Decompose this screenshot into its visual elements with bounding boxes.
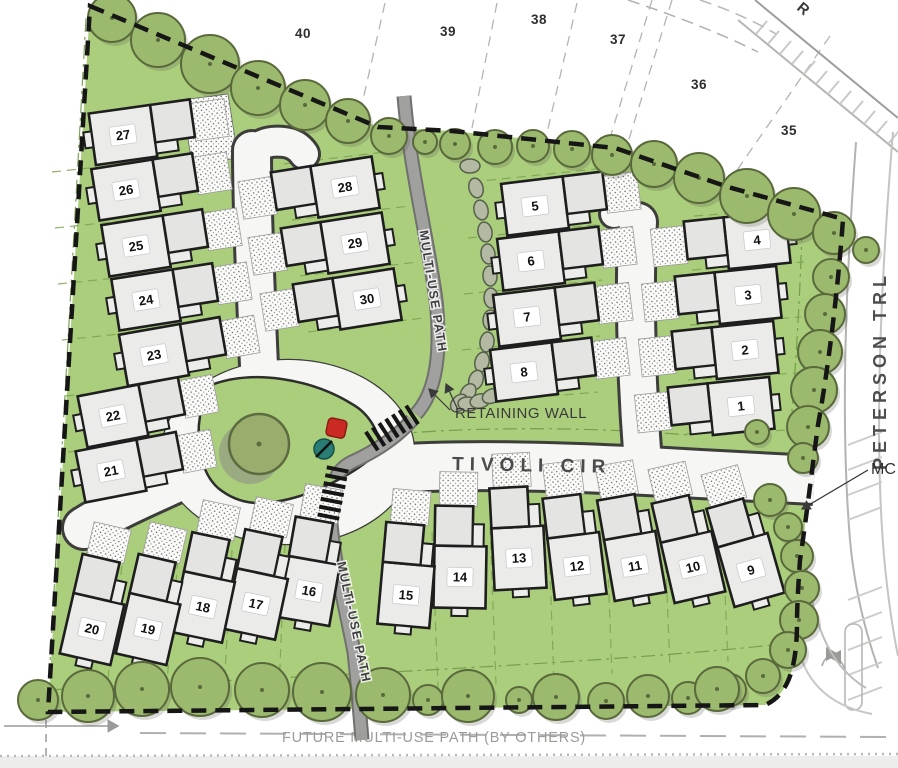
lot-label: 15: [398, 587, 414, 603]
stoop: [473, 524, 484, 546]
driveway: [592, 337, 630, 379]
garage: [281, 222, 326, 266]
lot-label: 2: [741, 342, 750, 358]
lot-marker: 15: [392, 584, 420, 605]
garage: [597, 494, 641, 540]
lot-label: 12: [569, 558, 585, 575]
porch: [491, 257, 501, 274]
porch: [487, 313, 497, 330]
garage: [672, 327, 716, 369]
lot-marker: 28: [331, 176, 360, 199]
garage: [684, 217, 728, 259]
future-path-label: FUTURE MULTI-USE PATH (BY OTHERS): [282, 730, 586, 746]
lot-marker: 25: [122, 235, 151, 258]
road-surface-band: [0, 756, 898, 768]
lot-label: 13: [511, 550, 526, 566]
stoop: [326, 541, 341, 565]
stoop: [178, 304, 201, 318]
road-surface-edge: [0, 754, 898, 756]
garage: [293, 278, 338, 322]
garage: [668, 383, 712, 425]
lot-marker: 24: [132, 289, 161, 312]
parcel-divider: [607, 0, 652, 148]
lot-marker: 5: [521, 195, 549, 217]
offsite-road-centerline: [700, 0, 776, 34]
garage: [559, 227, 603, 270]
porch: [573, 596, 590, 606]
porch: [106, 297, 116, 314]
lot-marker: 30: [353, 288, 382, 311]
site-plan-svg: 1234567891011121314151617181920212223242…: [0, 0, 898, 768]
lot-label: 17: [247, 595, 264, 613]
lot-label: 18: [194, 598, 211, 616]
lot-label: 14: [453, 569, 468, 584]
offsite-road-centerline: [628, 0, 758, 52]
lot-marker: 23: [140, 343, 169, 366]
stoop: [556, 377, 579, 391]
lot-marker: 13: [506, 548, 533, 568]
garage: [383, 522, 424, 565]
lot-label: 26: [118, 181, 135, 198]
driveway: [390, 488, 431, 525]
parcel-divider: [625, 0, 672, 152]
garage: [180, 317, 226, 361]
porch: [495, 202, 505, 219]
stoop: [158, 194, 181, 208]
stoop: [567, 211, 590, 225]
porch: [73, 414, 84, 431]
porch: [484, 368, 494, 385]
lot-marker: 3: [734, 284, 762, 306]
lot-label: 22: [104, 407, 121, 424]
lot-label: 27: [115, 127, 131, 144]
mc-label: MC: [871, 461, 896, 478]
offsite-parcel-label: 39: [440, 24, 456, 39]
stoop: [168, 250, 191, 264]
lot-label: 23: [146, 346, 163, 363]
lot-marker: 16: [295, 579, 324, 602]
porch: [114, 353, 125, 370]
garage: [150, 99, 195, 142]
porch: [395, 625, 412, 634]
porch: [86, 187, 96, 204]
lot-label: 25: [128, 237, 145, 254]
garage: [555, 283, 599, 326]
lot-marker: 6: [517, 250, 545, 272]
offsite-parcel-label: 36: [691, 77, 707, 92]
parcel-divider: [726, 36, 830, 186]
tree-center-dot: [257, 442, 262, 447]
stoop: [317, 316, 340, 330]
porch: [71, 469, 82, 486]
lot-label: 11: [627, 557, 643, 574]
lot-marker: 26: [112, 179, 141, 202]
site-plan-page: 1234567891011121314151617181920212223242…: [0, 0, 898, 768]
lot-label: 21: [102, 462, 119, 479]
stoop: [582, 511, 596, 534]
lot-marker: 11: [621, 554, 650, 577]
lot-marker: 7: [513, 306, 541, 328]
lot-label: 29: [347, 234, 364, 251]
offsite-road-edge: [755, 0, 898, 118]
garage: [652, 495, 698, 543]
lot-label: 28: [337, 178, 354, 195]
stoop: [155, 140, 178, 154]
garage: [675, 272, 719, 314]
lot-label: 30: [359, 290, 376, 307]
stoop: [694, 365, 717, 378]
lot-marker: 12: [563, 555, 591, 577]
porch: [775, 338, 785, 355]
garage: [163, 209, 208, 253]
porch: [513, 589, 529, 598]
driveway: [190, 99, 229, 141]
turn-arrow-icon: [822, 654, 837, 666]
porch: [83, 131, 93, 148]
porch: [374, 173, 384, 190]
garage: [271, 166, 316, 210]
porch: [771, 394, 781, 411]
driveway: [641, 281, 679, 322]
porch: [96, 243, 106, 260]
stoop: [690, 421, 713, 434]
lot-marker: 29: [341, 232, 370, 255]
stoop: [187, 358, 211, 373]
porch: [778, 283, 788, 300]
lot-marker: 14: [447, 567, 473, 586]
driveway: [638, 336, 676, 377]
parcel-divider: [547, 3, 577, 133]
lot-marker: 2: [731, 339, 759, 361]
driveway: [634, 392, 672, 433]
street-label-tivoli: TIVOLI CIR: [452, 454, 612, 478]
parcel-divider: [472, 3, 497, 128]
lot-label: 16: [301, 582, 318, 599]
red-marker-icon: [325, 417, 347, 439]
stoop: [528, 504, 540, 527]
garage: [173, 263, 218, 307]
porch: [396, 285, 406, 302]
lot-marker: 27: [109, 124, 137, 146]
driveway: [595, 282, 633, 324]
offsite-street-partial: R: [793, 0, 812, 19]
garage: [489, 486, 529, 528]
porch: [294, 620, 311, 631]
lot-label: 1: [737, 398, 746, 414]
stoop: [421, 543, 434, 566]
garage: [153, 153, 198, 197]
driveway: [650, 226, 688, 267]
lot-marker: 4: [743, 229, 771, 251]
offsite-parcel-label: 40: [295, 26, 311, 41]
garage: [435, 506, 474, 547]
garage: [563, 172, 607, 215]
lot-marker: 1: [727, 395, 755, 417]
offsite-parcel-label: 38: [531, 12, 547, 27]
offsite-parcel-label: 35: [781, 123, 797, 138]
porch: [451, 608, 467, 616]
porch: [633, 595, 650, 606]
street-label-peterson: PETERSON TRL: [870, 271, 890, 470]
stoop: [295, 204, 318, 218]
driveway: [439, 472, 478, 507]
stoop: [563, 266, 586, 280]
garage: [136, 432, 183, 477]
stoop: [697, 310, 720, 323]
offsite-road-edge: [738, 20, 898, 152]
stoop: [305, 260, 328, 274]
driveway: [599, 226, 637, 268]
porch: [384, 229, 394, 246]
garage: [543, 494, 586, 538]
offsite-parcel-label: 37: [610, 32, 626, 47]
stoop: [559, 322, 582, 336]
lot-marker: 8: [510, 361, 538, 383]
garage: [552, 338, 596, 381]
retaining-wall-label: RETAINING WALL: [455, 405, 587, 422]
stoop: [706, 255, 729, 268]
stoop: [638, 510, 653, 534]
lot-label: 3: [744, 287, 753, 303]
